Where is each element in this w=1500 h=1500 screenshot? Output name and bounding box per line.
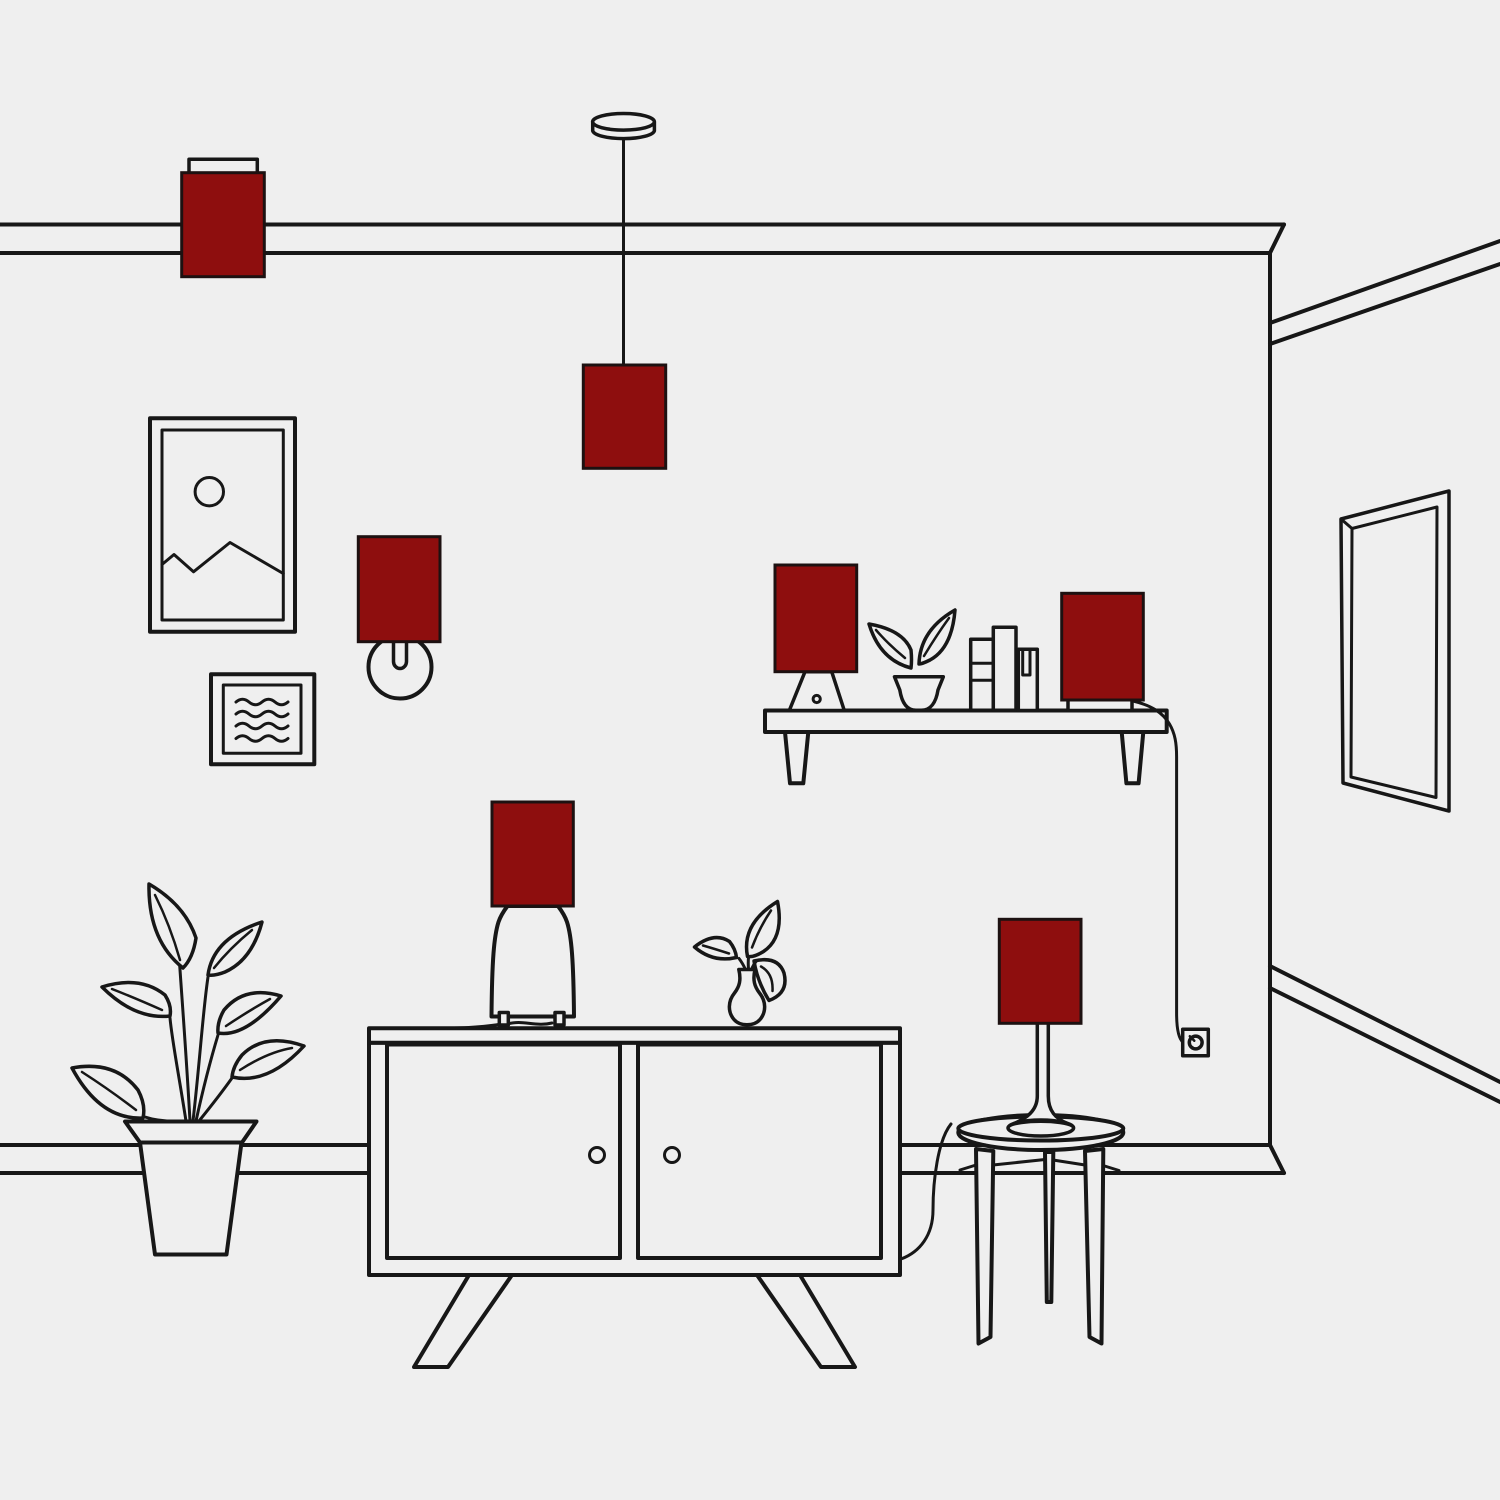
plant-pot-body bbox=[140, 1143, 242, 1255]
table-leg-center bbox=[1045, 1152, 1053, 1302]
lamp-cord-loop bbox=[508, 1023, 552, 1025]
pendant-shade bbox=[583, 365, 665, 468]
book bbox=[971, 639, 994, 710]
picture-frame-landscape bbox=[150, 418, 295, 631]
room-illustration bbox=[0, 0, 1500, 1500]
lamp-shade bbox=[775, 565, 857, 672]
book bbox=[1018, 649, 1037, 710]
sconce-shade bbox=[358, 537, 440, 642]
shelf-leg-left bbox=[785, 732, 808, 783]
frame-outer bbox=[211, 674, 314, 764]
pendant-canopy-top bbox=[593, 114, 655, 131]
sideboard-top bbox=[369, 1028, 900, 1042]
lamp-shade bbox=[999, 919, 1081, 1023]
table-leg-right bbox=[1085, 1149, 1103, 1344]
wall-sconce bbox=[358, 537, 440, 699]
mirror bbox=[1341, 491, 1449, 811]
mirror-frame-outer bbox=[1341, 491, 1449, 811]
picture-frame-abstract bbox=[211, 674, 314, 764]
room-scene-svg bbox=[0, 0, 1500, 1500]
lamp-foot bbox=[499, 1013, 508, 1026]
frame-outer bbox=[150, 418, 295, 631]
table-leg-left bbox=[976, 1149, 993, 1344]
lamp-shade bbox=[492, 802, 573, 906]
lamp-body bbox=[492, 906, 575, 1017]
shelf-board bbox=[765, 711, 1167, 733]
lamp-shade bbox=[1062, 593, 1144, 700]
sideboard-body bbox=[369, 1043, 900, 1275]
ceiling-lamp-shade bbox=[182, 173, 265, 277]
book bbox=[993, 627, 1016, 710]
shelf-leg-right bbox=[1122, 732, 1144, 783]
shelf-lamp-right bbox=[1062, 593, 1144, 710]
ceiling-lamp bbox=[182, 159, 265, 276]
wall-outlet bbox=[1183, 1029, 1209, 1055]
lamp-foot bbox=[555, 1013, 564, 1026]
sconce-stem bbox=[394, 640, 407, 669]
plant-pot-rim bbox=[125, 1122, 257, 1143]
